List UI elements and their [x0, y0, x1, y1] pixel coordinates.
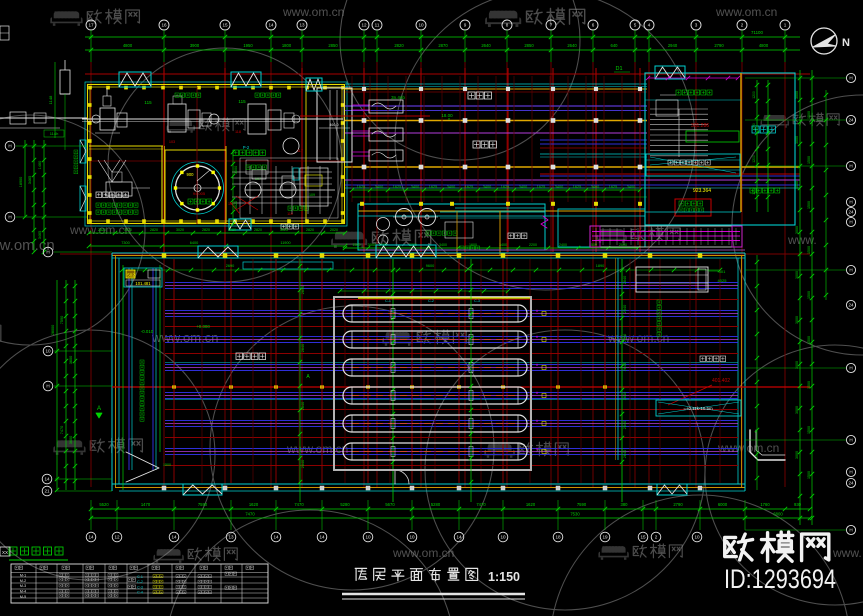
- svg-text:1500: 1500: [807, 426, 811, 434]
- svg-text:1200: 1200: [752, 155, 756, 163]
- svg-text:3600: 3600: [234, 166, 238, 174]
- svg-text:7590: 7590: [60, 316, 64, 324]
- svg-text:3000: 3000: [795, 406, 799, 414]
- svg-text:1600: 1600: [469, 243, 477, 247]
- svg-text:1148: 1148: [48, 95, 53, 104]
- svg-text:1625: 1625: [573, 185, 581, 189]
- svg-text:1625: 1625: [501, 185, 509, 189]
- svg-text:2820: 2820: [254, 228, 262, 232]
- svg-text:28000: 28000: [51, 325, 55, 336]
- svg-text:C-2: C-2: [137, 580, 143, 584]
- svg-text:14: 14: [171, 535, 177, 540]
- svg-text:H: H: [849, 76, 852, 81]
- svg-text:www.om.cn: www.om.cn: [715, 5, 777, 19]
- svg-text:www.om.cn: www.om.cn: [392, 546, 454, 560]
- svg-text:*: *: [536, 420, 539, 427]
- svg-text:*: *: [536, 364, 539, 371]
- svg-text:3000: 3000: [795, 271, 799, 279]
- svg-text:10: 10: [365, 535, 371, 540]
- svg-text:118: 118: [235, 130, 241, 134]
- svg-text:2640: 2640: [623, 305, 627, 313]
- svg-text:2640: 2640: [301, 286, 305, 294]
- svg-text:18: 18: [555, 535, 561, 540]
- svg-text:3400: 3400: [627, 185, 635, 189]
- svg-text:640: 640: [611, 43, 619, 48]
- svg-text:C-3: C-3: [137, 585, 143, 589]
- svg-text:N: N: [842, 37, 850, 49]
- svg-text:*: *: [536, 392, 539, 399]
- svg-text:1200: 1200: [752, 91, 756, 99]
- svg-text:1760: 1760: [760, 502, 770, 507]
- svg-text:101.481: 101.481: [135, 281, 151, 286]
- svg-text:3900: 3900: [190, 43, 200, 48]
- svg-text:5670: 5670: [385, 502, 395, 507]
- svg-text:2020: 2020: [330, 228, 338, 232]
- svg-text:2640: 2640: [301, 344, 305, 352]
- svg-text:3000: 3000: [795, 91, 799, 99]
- svg-text:7470: 7470: [476, 502, 486, 507]
- svg-text:3400: 3400: [439, 243, 447, 247]
- svg-text:H: H: [849, 164, 852, 169]
- svg-text:1625: 1625: [537, 185, 545, 189]
- svg-text:10: 10: [500, 535, 506, 540]
- svg-text:2850: 2850: [524, 43, 534, 48]
- svg-text:2790: 2790: [714, 43, 724, 48]
- svg-text:3465: 3465: [28, 176, 32, 184]
- svg-text:3600: 3600: [69, 436, 73, 444]
- svg-text:1800: 1800: [282, 43, 292, 48]
- svg-text:*: *: [536, 310, 539, 317]
- svg-text:2820: 2820: [150, 228, 158, 232]
- svg-text:H: H: [849, 528, 852, 533]
- svg-text:3: 3: [695, 23, 698, 28]
- svg-text:2820: 2820: [202, 228, 210, 232]
- svg-text:C-3: C-3: [474, 299, 480, 303]
- svg-text:ID:1293694: ID:1293694: [724, 564, 836, 594]
- svg-text:1500: 1500: [353, 243, 361, 247]
- svg-text:3400: 3400: [447, 185, 455, 189]
- svg-text:3000: 3000: [795, 181, 799, 189]
- svg-text:2640: 2640: [623, 334, 627, 342]
- svg-text:114h: 114h: [50, 131, 59, 136]
- svg-text:930: 930: [794, 502, 802, 507]
- svg-text:M-5: M-5: [20, 595, 26, 599]
- svg-text:3000: 3000: [795, 451, 799, 459]
- svg-text:10: 10: [694, 535, 700, 540]
- svg-text:15: 15: [222, 23, 228, 28]
- svg-text:5280: 5280: [340, 502, 350, 507]
- svg-text:3020: 3020: [124, 228, 132, 232]
- svg-text:24: 24: [848, 118, 854, 123]
- svg-text:2640: 2640: [623, 392, 627, 400]
- svg-text:2820: 2820: [98, 228, 106, 232]
- svg-text:460-0: 460-0: [329, 123, 338, 127]
- svg-text:3400: 3400: [483, 185, 491, 189]
- svg-text:11: 11: [375, 23, 380, 28]
- svg-text:13: 13: [228, 535, 234, 540]
- svg-text:17: 17: [88, 23, 94, 28]
- svg-text:900: 900: [187, 172, 195, 177]
- svg-text:www.om.cn: www.om.cn: [282, 5, 344, 19]
- svg-text:12: 12: [361, 23, 367, 28]
- svg-text:2000: 2000: [619, 243, 627, 247]
- svg-text:H: H: [849, 470, 852, 475]
- svg-text:1500: 1500: [807, 471, 811, 479]
- svg-text:13: 13: [299, 23, 305, 28]
- svg-text:H: H: [8, 144, 11, 149]
- svg-text:*: *: [448, 118, 450, 124]
- svg-text:1500: 1500: [807, 291, 811, 299]
- svg-text:M-1: M-1: [20, 574, 26, 578]
- svg-text:7530: 7530: [570, 512, 580, 517]
- svg-text:3400: 3400: [591, 185, 599, 189]
- svg-text:2640: 2640: [623, 363, 627, 371]
- svg-text:+0.000: +0.000: [196, 324, 210, 329]
- svg-text:3000: 3000: [795, 316, 799, 324]
- svg-text:5280: 5280: [431, 502, 441, 507]
- svg-text:H: H: [849, 220, 852, 225]
- svg-text:1620: 1620: [249, 502, 259, 507]
- svg-text:1:150: 1:150: [488, 570, 520, 584]
- svg-text:3400: 3400: [519, 185, 527, 189]
- svg-text:18900: 18900: [19, 177, 23, 188]
- svg-text:1625: 1625: [609, 185, 617, 189]
- svg-text:10: 10: [418, 23, 424, 28]
- svg-text:3465: 3465: [38, 231, 42, 239]
- svg-text:1500: 1500: [807, 111, 811, 119]
- svg-text:3000: 3000: [795, 136, 799, 144]
- svg-text:3400: 3400: [375, 185, 383, 189]
- svg-text:115: 115: [144, 100, 152, 105]
- svg-text:1200: 1200: [752, 123, 756, 131]
- svg-text:923.364: 923.364: [693, 188, 711, 194]
- svg-text:7470: 7470: [245, 512, 255, 517]
- svg-text:1500: 1500: [807, 336, 811, 344]
- svg-text:14: 14: [88, 535, 94, 540]
- svg-text:D1: D1: [615, 66, 622, 72]
- svg-text:5: 5: [634, 23, 637, 28]
- svg-text:71100: 71100: [751, 30, 763, 35]
- svg-text:10: 10: [409, 535, 415, 540]
- svg-text:11900: 11900: [280, 241, 290, 245]
- svg-text:21: 21: [44, 489, 50, 494]
- svg-text:14: 14: [44, 477, 50, 482]
- svg-text:16: 16: [161, 23, 167, 28]
- svg-text:M-4: M-4: [20, 590, 26, 594]
- svg-text:2790: 2790: [673, 502, 683, 507]
- svg-text:3600: 3600: [69, 356, 73, 364]
- svg-text:12: 12: [114, 535, 120, 540]
- svg-text:-0.010: -0.010: [141, 329, 154, 334]
- svg-text:401.402: 401.402: [712, 378, 730, 384]
- svg-text:1890: 1890: [596, 264, 604, 268]
- svg-text:1500: 1500: [163, 463, 171, 467]
- svg-text:1950: 1950: [243, 43, 253, 48]
- svg-text:14: 14: [268, 23, 274, 28]
- svg-text:2870: 2870: [438, 43, 448, 48]
- svg-text:1620: 1620: [526, 502, 536, 507]
- svg-text:301.286: 301.286: [691, 123, 709, 129]
- svg-text:3020: 3020: [234, 201, 238, 209]
- svg-text:2640: 2640: [623, 276, 627, 284]
- svg-text:7590: 7590: [577, 502, 587, 507]
- svg-text:24: 24: [848, 210, 854, 215]
- svg-text:4800: 4800: [123, 43, 133, 48]
- svg-text:H: H: [8, 215, 11, 220]
- svg-text:2200: 2200: [529, 243, 537, 247]
- svg-text:6000: 6000: [718, 502, 728, 507]
- svg-text:380: 380: [621, 502, 629, 507]
- svg-text:3n.4nb: 3n.4nb: [391, 95, 405, 100]
- svg-text:1500: 1500: [807, 156, 811, 164]
- svg-text:301: 301: [719, 269, 726, 274]
- svg-text:1460: 1460: [38, 161, 42, 169]
- svg-text:1: 1: [784, 23, 787, 28]
- svg-text:6800: 6800: [773, 512, 783, 517]
- svg-text:C-1: C-1: [385, 299, 391, 303]
- svg-text:=+0.11k-10.5m: =+0.11k-10.5m: [683, 406, 713, 411]
- svg-text:2640: 2640: [623, 450, 627, 458]
- svg-text:14: 14: [319, 535, 325, 540]
- svg-text:6: 6: [592, 23, 595, 28]
- svg-text:2: 2: [741, 23, 744, 28]
- svg-text:H: H: [849, 200, 852, 205]
- svg-text:94.005: 94.005: [193, 191, 206, 196]
- svg-text:M-3: M-3: [20, 584, 26, 588]
- svg-text:2640: 2640: [301, 402, 305, 410]
- svg-text:15: 15: [640, 535, 646, 540]
- svg-text:1500: 1500: [807, 246, 811, 254]
- svg-text:C-2: C-2: [428, 299, 434, 303]
- svg-text:103: 103: [169, 140, 175, 144]
- svg-text:24: 24: [848, 303, 854, 308]
- svg-text:14: 14: [456, 535, 462, 540]
- svg-text:3020: 3020: [228, 228, 236, 232]
- svg-text:1500: 1500: [807, 381, 811, 389]
- svg-text:10: 10: [45, 349, 51, 354]
- svg-text:115: 115: [238, 99, 246, 104]
- svg-text:H: H: [46, 384, 49, 389]
- svg-text:A: A: [97, 406, 101, 412]
- svg-text:H: H: [849, 366, 852, 371]
- svg-text:2820: 2820: [306, 228, 314, 232]
- svg-text:2640: 2640: [481, 43, 491, 48]
- svg-text:2850: 2850: [328, 43, 338, 48]
- svg-text:H: H: [849, 438, 852, 443]
- svg-text:1625: 1625: [357, 185, 365, 189]
- svg-text:9600: 9600: [426, 264, 434, 268]
- svg-text:2640: 2640: [301, 460, 305, 468]
- svg-text:502: 502: [127, 273, 135, 278]
- svg-text:2: 2: [655, 535, 658, 540]
- svg-text:www.: www.: [832, 546, 862, 560]
- svg-text:2640: 2640: [567, 43, 577, 48]
- svg-text:C-4: C-4: [137, 591, 143, 595]
- svg-text:9: 9: [464, 23, 467, 28]
- svg-text:1500: 1500: [807, 201, 811, 209]
- svg-text:1470: 1470: [141, 502, 151, 507]
- svg-text:*: *: [536, 336, 539, 343]
- svg-text:3000: 3000: [795, 226, 799, 234]
- svg-text:14: 14: [273, 535, 279, 540]
- svg-text:5520: 5520: [99, 502, 109, 507]
- svg-text:117: 117: [297, 149, 303, 153]
- svg-text:3400: 3400: [555, 185, 563, 189]
- svg-text:P-2: P-2: [243, 145, 250, 150]
- svg-text:1625: 1625: [465, 185, 473, 189]
- svg-text:1200: 1200: [752, 187, 756, 195]
- svg-text:2640: 2640: [623, 421, 627, 429]
- svg-text:2690: 2690: [226, 264, 234, 268]
- svg-text:2940: 2940: [668, 43, 678, 48]
- svg-text:3020: 3020: [176, 228, 184, 232]
- svg-text:7300: 7300: [121, 241, 129, 245]
- svg-text:1625: 1625: [429, 185, 437, 189]
- svg-text:3400: 3400: [411, 185, 419, 189]
- svg-text:3020: 3020: [280, 228, 288, 232]
- svg-text:8: 8: [506, 23, 509, 28]
- svg-text:7: 7: [550, 23, 553, 28]
- svg-text:2820: 2820: [394, 43, 404, 48]
- svg-text:*: *: [536, 448, 539, 455]
- svg-text:H: H: [46, 250, 49, 255]
- svg-text:M-2: M-2: [20, 579, 26, 583]
- svg-text:7590: 7590: [198, 502, 208, 507]
- svg-text:2400: 2400: [559, 243, 567, 247]
- svg-text:109: 109: [309, 193, 315, 197]
- svg-text:XX: XX: [2, 550, 8, 555]
- svg-text:H: H: [849, 268, 852, 273]
- svg-text:4800: 4800: [759, 43, 769, 48]
- svg-text:1625: 1625: [393, 185, 401, 189]
- svg-text:19: 19: [602, 535, 608, 540]
- svg-text:7470: 7470: [60, 426, 64, 434]
- svg-text:C-1: C-1: [137, 575, 143, 579]
- svg-text:110: 110: [287, 212, 293, 216]
- svg-text:6400: 6400: [190, 241, 198, 245]
- svg-text:7470: 7470: [294, 502, 304, 507]
- svg-text:4: 4: [648, 23, 651, 28]
- svg-text:4025: 4025: [718, 278, 728, 283]
- svg-text:24: 24: [848, 481, 854, 486]
